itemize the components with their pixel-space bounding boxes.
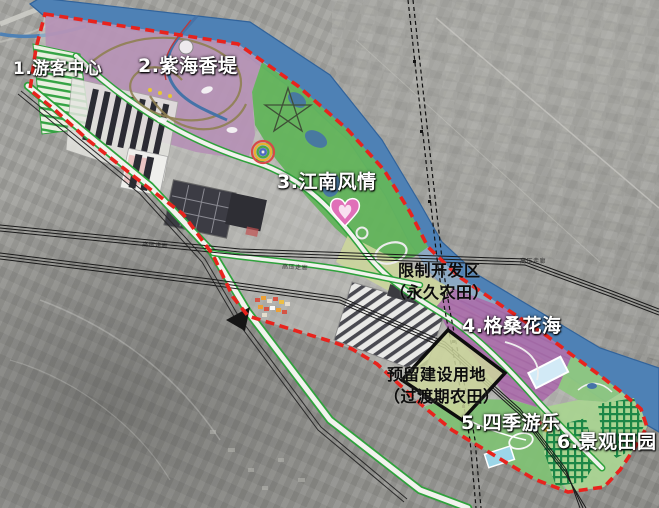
map-svg	[0, 0, 659, 508]
rainbow-spiral-icon	[252, 141, 274, 163]
planning-map: 1.游客中心 2.紫海香堤 3.江南风情 4.格桑花海 5.四季游乐 6.景观田…	[0, 0, 659, 508]
zone-maze-area	[540, 392, 647, 492]
ferris-wheel-icon	[179, 40, 193, 54]
